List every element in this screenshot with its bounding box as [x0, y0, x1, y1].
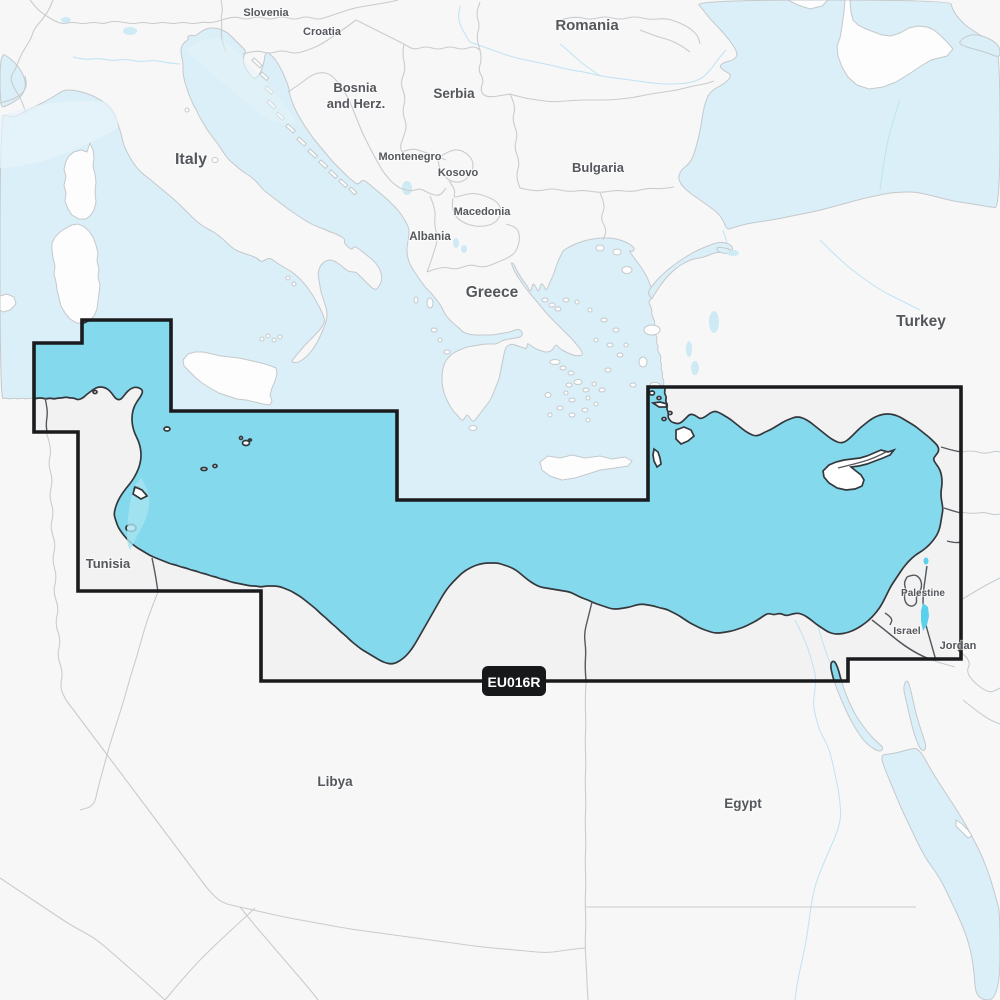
svg-text:and Herz.: and Herz. — [327, 96, 386, 111]
svg-text:Turkey: Turkey — [896, 313, 946, 330]
svg-text:Greece: Greece — [466, 284, 519, 301]
svg-text:Romania: Romania — [555, 17, 619, 34]
svg-text:Albania: Albania — [409, 231, 451, 243]
svg-text:Palestine: Palestine — [901, 588, 945, 599]
svg-text:Italy: Italy — [175, 151, 207, 168]
svg-text:Tunisia: Tunisia — [86, 556, 131, 571]
svg-text:Israel: Israel — [893, 625, 921, 637]
svg-text:Jordan: Jordan — [940, 640, 977, 652]
svg-text:Serbia: Serbia — [433, 86, 475, 101]
svg-text:Bosnia: Bosnia — [333, 80, 377, 95]
svg-text:EU016R: EU016R — [488, 674, 541, 690]
svg-text:Croatia: Croatia — [303, 26, 342, 38]
svg-text:Kosovo: Kosovo — [438, 167, 479, 179]
svg-text:Bulgaria: Bulgaria — [572, 160, 625, 175]
svg-text:Slovenia: Slovenia — [243, 7, 289, 19]
svg-text:Egypt: Egypt — [724, 796, 762, 811]
svg-text:Montenegro: Montenegro — [379, 151, 442, 163]
svg-text:Libya: Libya — [317, 774, 353, 789]
svg-text:Macedonia: Macedonia — [454, 206, 512, 218]
